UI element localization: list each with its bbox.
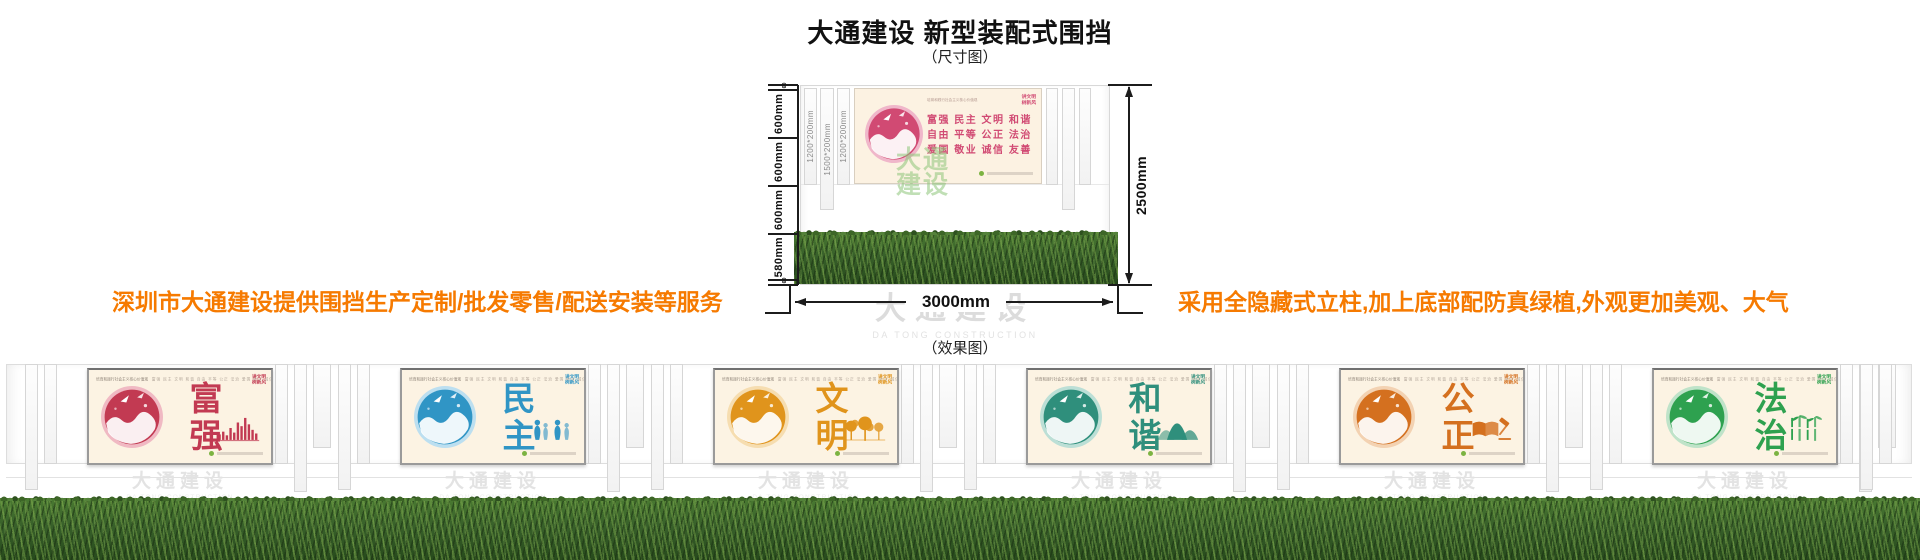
mountains-icon [1156,413,1200,443]
effect-panel: 培育和践行社会主义核心价值观富强 民主 文明 和谐 自由 平等 公正 法治 爱国… [1652,368,1838,465]
post-slat [1546,364,1559,492]
post-slat [670,364,683,464]
civility-badge: 讲文明树新风 [1504,375,1518,386]
extension-line [765,312,790,314]
arrow-up-icon [1125,86,1133,97]
brand-watermark-zh: 大通建设 [713,466,899,493]
fine-print [979,171,1033,176]
fine-print [1461,451,1515,456]
extension-line [1118,312,1143,314]
values-row: 自由 平等 公正 法治 [927,128,1039,143]
effect-panel: 培育和践行社会主义核心价值观富强 民主 文明 和谐 自由 平等 公正 法治 爱国… [400,368,586,465]
green-dot-icon [1148,451,1153,456]
fine-print-line [1469,452,1515,455]
dimension-tick-icon [1108,284,1152,286]
segment-label: 580mm [766,234,792,280]
bird-branch-circle-icon [1040,386,1102,448]
post-slat [275,364,288,464]
green-dot-icon [835,451,840,456]
post-slat [651,364,664,490]
height-dimension-label: 2500mm [1131,135,1151,235]
post-slat [25,364,38,490]
post-slat [357,364,370,464]
green-dot-icon [522,451,527,456]
book-gavel-icon [1469,413,1513,443]
green-dot-icon [209,451,214,456]
badge-line: 树新风 [1022,101,1036,107]
post-slat [607,364,620,492]
green-dot-icon [1461,451,1466,456]
post-slat [1527,364,1540,464]
brand-watermark-zh: 大通建设 [400,466,586,493]
effect-panel: 培育和践行社会主义核心价值观富强 民主 文明 和谐 自由 平等 公正 法治 爱国… [1339,368,1525,465]
post-slat [964,364,977,490]
civility-badge: 讲文明树新风 [565,375,579,386]
people-icon [530,413,574,443]
post-slat [1860,364,1873,490]
hedge-bottom [0,498,1920,560]
post-slat [1296,364,1309,464]
fine-print-line [987,172,1033,175]
post-slat [1840,364,1853,464]
extension-line [789,284,791,314]
brand-watermark-green: 大通建设 [896,148,956,198]
figure-bamboo-circle-icon [1666,386,1728,448]
fine-print [209,451,263,456]
fine-print-line [530,452,576,455]
effect-panel: 培育和践行社会主义核心价值观富强 民主 文明 和谐 自由 平等 公正 法治 爱国… [1026,368,1212,465]
post-slat [1214,364,1227,464]
trees-icon [843,413,887,443]
post-slat [1879,364,1892,464]
fine-print-line [843,452,889,455]
post-slat [901,364,914,464]
post-slat [1565,364,1583,448]
post-slat [1609,364,1622,464]
hedge-diagram [794,232,1118,284]
gavel-book-circle-icon [1353,386,1415,448]
effect-panel: 培育和践行社会主义核心价值观富强 民主 文明 和谐 自由 平等 公正 法治 爱国… [713,368,899,465]
fine-print-line [1156,452,1202,455]
fine-print [835,451,889,456]
segment-label: 600mm [766,138,792,186]
skyline-bars-icon [217,413,261,443]
fine-print-line [217,452,263,455]
post-slat [1277,364,1290,490]
fine-print-line [1782,452,1828,455]
post-slat [1233,364,1246,492]
effect-panel: 培育和践行社会主义核心价值观富强 民主 文明 和谐 自由 平等 公正 法治 爱国… [87,368,273,465]
arrow-down-icon [1125,273,1133,284]
civility-badge: 讲文明树新风 [252,375,266,386]
brand-watermark-zh: 大通建设 [1652,466,1838,493]
brand-watermark-zh: 大通建设 [87,466,273,493]
values-row: 富强 民主 文明 和谐 [927,113,1039,128]
post-slat [626,364,644,448]
civility-badge: 讲文明树新风 [1817,375,1831,386]
width-dimension-label: 3000mm [906,292,1006,312]
fine-print [1148,451,1202,456]
green-dot-icon [979,171,984,176]
post-slat [338,364,351,490]
papercut-city-circle-icon [101,386,163,448]
dimension-line [797,85,799,285]
arrow-left-icon [795,298,806,306]
post-slat [294,364,307,492]
segment-label: 600mm [766,90,792,138]
bamboo-icon [1782,413,1826,443]
post-slat [920,364,933,492]
effect-diagram-caption: （效果图） [0,337,1920,358]
brand-watermark-zh: 大通建设 [1026,466,1212,493]
civility-badge: 讲文明树新风 [878,375,892,386]
civility-badge: 讲文明树新风 [1191,375,1205,386]
dimension-line [1128,87,1130,283]
post-slat [1252,364,1270,448]
poster-canvas: 大通建设 新型装配式围挡 （尺寸图） 深圳市大通建设提供围挡生产定制/批发零售/… [0,0,1920,560]
extension-line [1117,284,1119,314]
segment-label: 600mm [766,186,792,234]
post-slat [983,364,996,464]
fine-print [1774,451,1828,456]
brand-watermark-zh: 大通建设 [1339,466,1525,493]
green-dot-icon [1774,451,1779,456]
dove-globe-circle-icon [727,386,789,448]
people-doves-circle-icon [414,386,476,448]
post-slat [1590,364,1603,490]
dimension-tick-icon [768,284,798,286]
post-slat [588,364,601,464]
post-slat [313,364,331,448]
fine-print [522,451,576,456]
arrow-right-icon [1102,298,1113,306]
civility-badge: 讲文明 树新风 [1022,95,1036,106]
post-slat [939,364,957,448]
post-slat [44,364,57,464]
